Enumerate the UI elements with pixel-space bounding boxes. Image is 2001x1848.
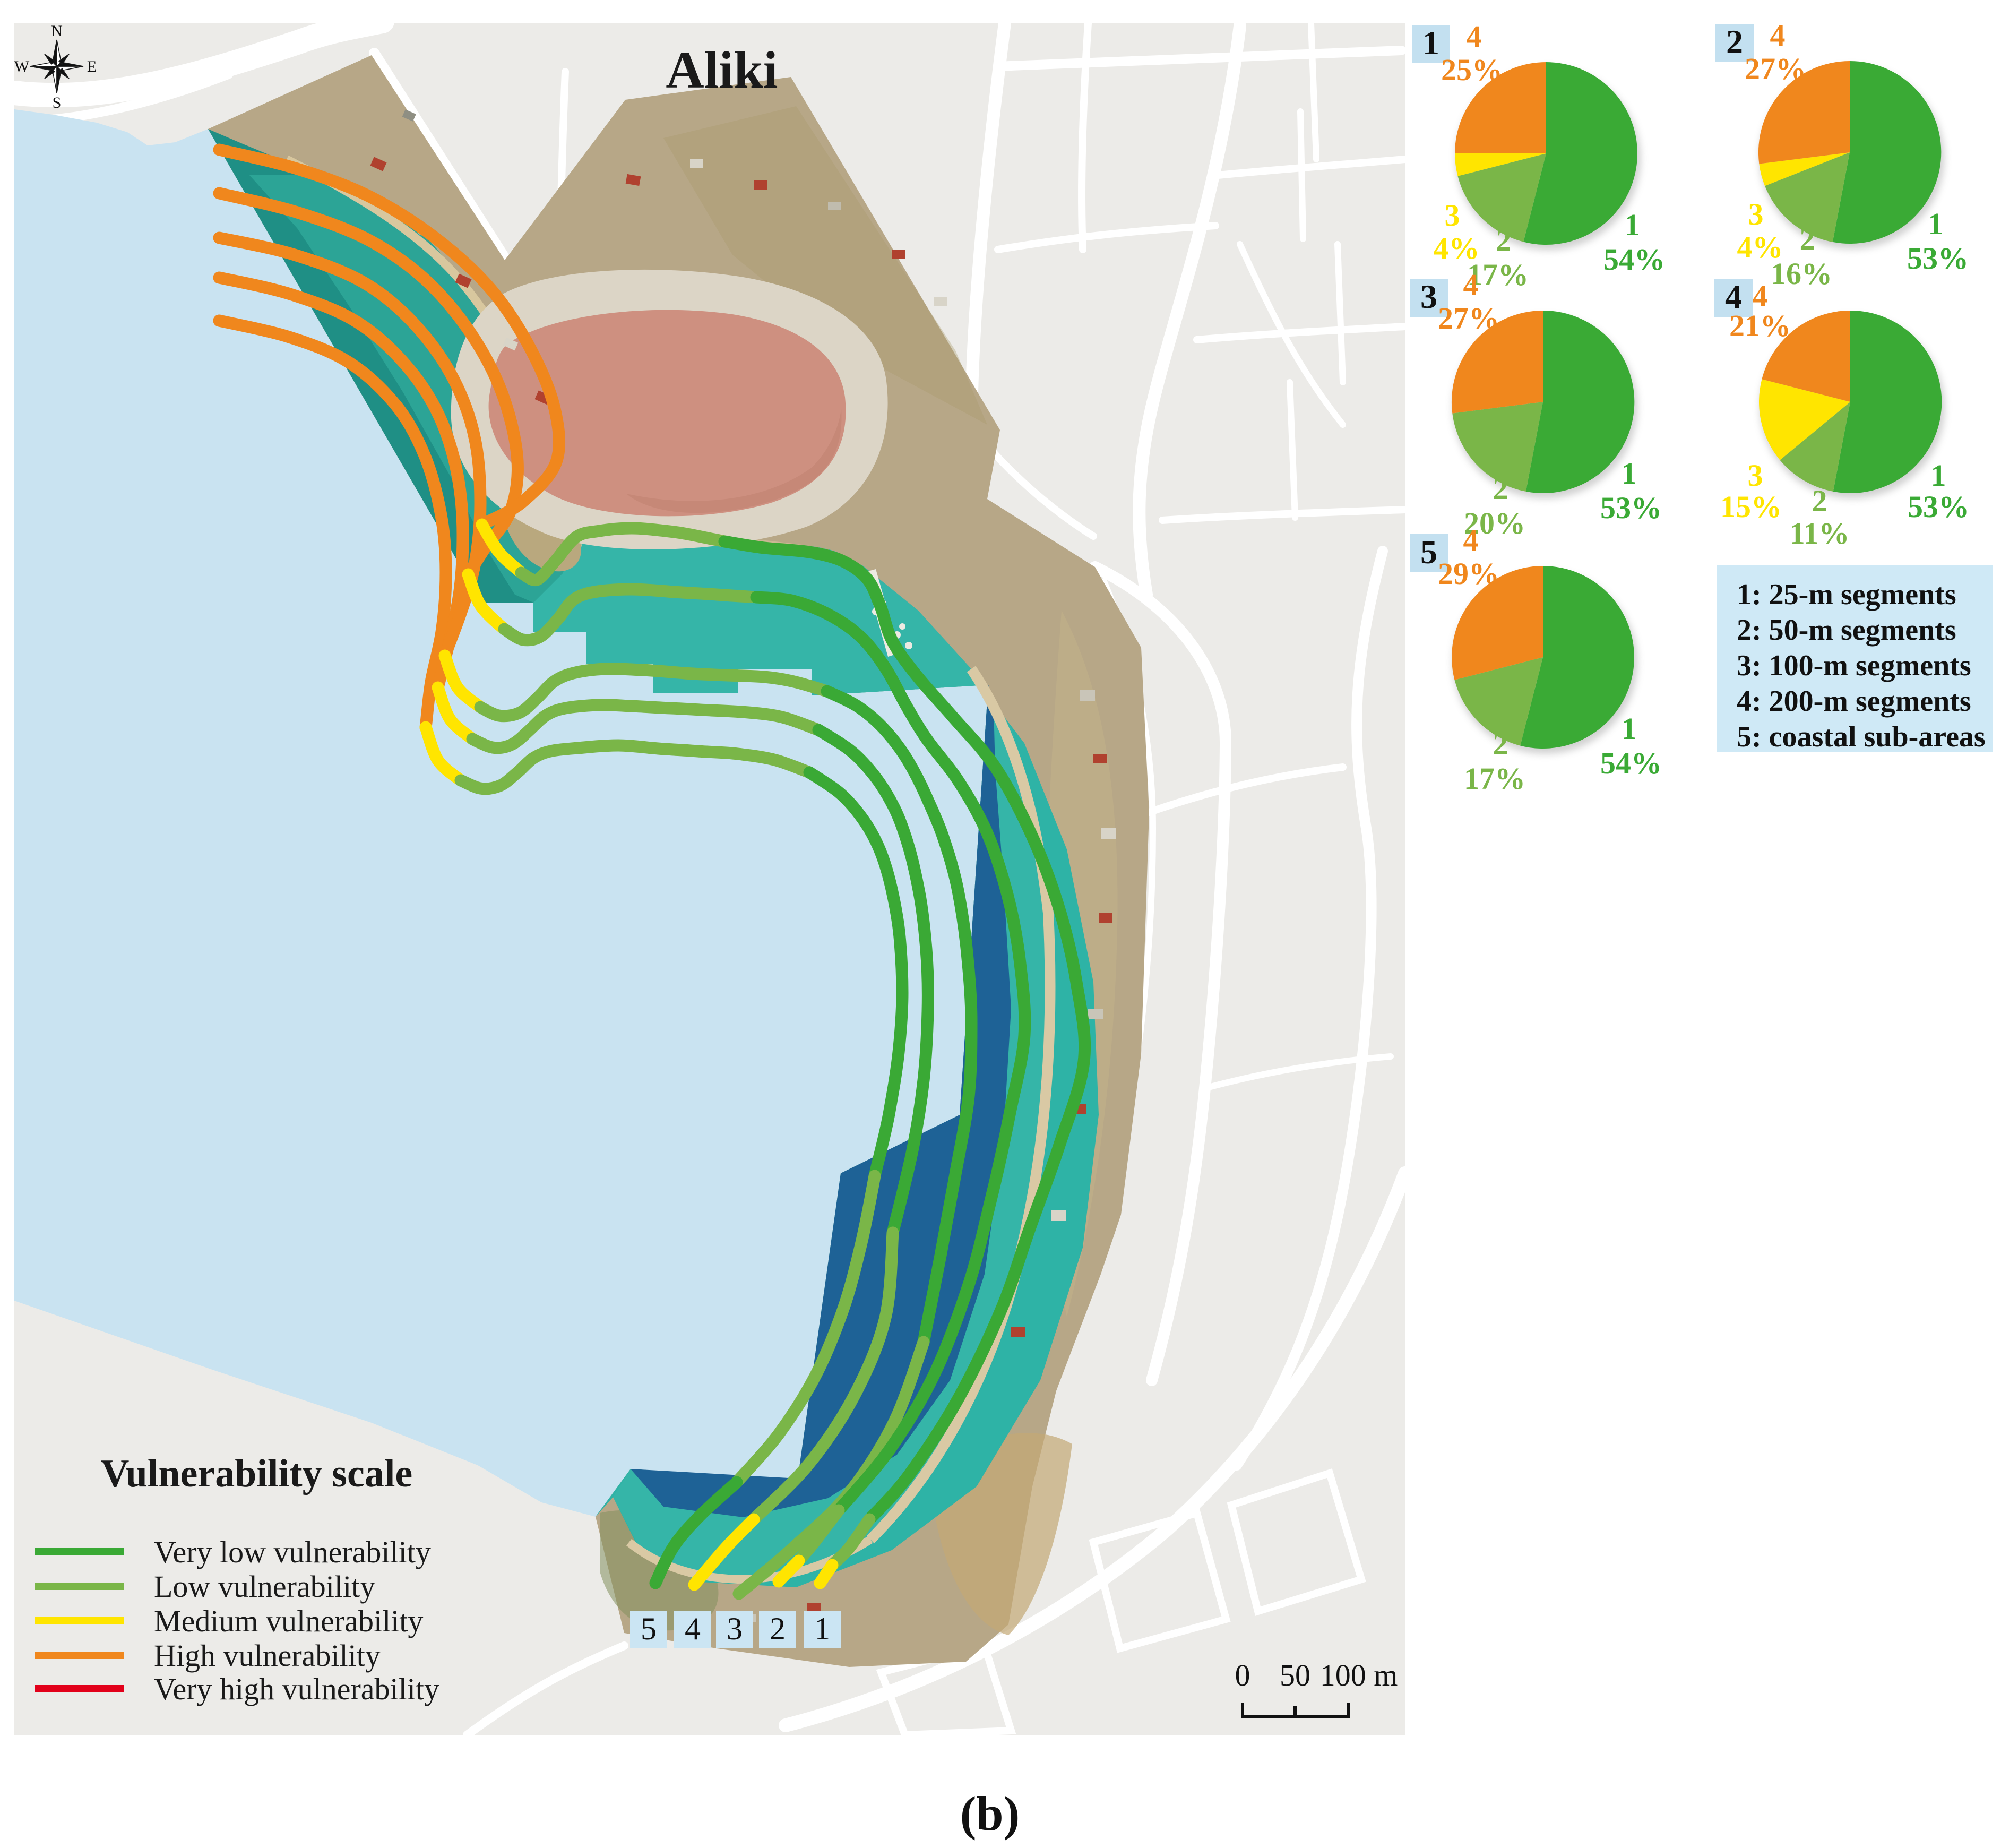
svg-text:2: 2 xyxy=(1726,23,1743,61)
svg-text:2: 2 xyxy=(1800,222,1815,256)
svg-text:4: 4 xyxy=(1467,19,1482,54)
svg-text:27%: 27% xyxy=(1438,301,1499,336)
svg-text:2: 2 xyxy=(1493,727,1508,761)
svg-text:W: W xyxy=(14,58,30,75)
svg-text:1: 1 xyxy=(1621,456,1637,491)
svg-text:Aliki: Aliki xyxy=(666,40,778,99)
svg-text:3: 3 xyxy=(727,1611,743,1646)
svg-text:100 m: 100 m xyxy=(1320,1658,1398,1692)
svg-text:2: 2 xyxy=(1812,484,1827,518)
svg-text:3: 3 xyxy=(1748,197,1764,231)
svg-text:4: 4 xyxy=(1463,268,1479,302)
svg-text:5: coastal sub-areas: 5: coastal sub-areas xyxy=(1737,720,1986,753)
svg-text:53%: 53% xyxy=(1600,491,1662,525)
svg-text:4: 200-m segments: 4: 200-m segments xyxy=(1737,685,1971,718)
svg-text:1: 1 xyxy=(1931,458,1946,493)
svg-text:Low vulnerability: Low vulnerability xyxy=(154,1569,375,1604)
svg-text:16%: 16% xyxy=(1771,256,1832,291)
svg-text:High vulnerability: High vulnerability xyxy=(154,1638,381,1673)
svg-text:25%: 25% xyxy=(1441,53,1503,87)
svg-text:53%: 53% xyxy=(1907,241,1969,276)
svg-text:2: 2 xyxy=(1496,223,1512,257)
svg-text:2: 2 xyxy=(1493,471,1508,506)
svg-text:54%: 54% xyxy=(1600,746,1662,780)
svg-text:E: E xyxy=(87,58,97,75)
svg-text:17%: 17% xyxy=(1464,761,1525,796)
svg-text:Very high vulnerability: Very high vulnerability xyxy=(154,1672,439,1706)
svg-text:Very low vulnerability: Very low vulnerability xyxy=(154,1535,431,1569)
svg-text:3: 3 xyxy=(1445,198,1460,233)
svg-text:3: 3 xyxy=(1420,278,1437,315)
svg-text:53%: 53% xyxy=(1908,489,1969,524)
svg-text:29%: 29% xyxy=(1438,556,1499,591)
svg-text:54%: 54% xyxy=(1603,242,1665,277)
svg-text:Vulnerability scale: Vulnerability scale xyxy=(101,1452,412,1495)
svg-text:15%: 15% xyxy=(1720,489,1782,524)
svg-text:1: 1 xyxy=(1928,207,1944,241)
svg-text:N: N xyxy=(51,22,63,40)
svg-text:4: 4 xyxy=(1463,523,1479,557)
svg-text:1: 1 xyxy=(1422,24,1439,62)
svg-text:(b): (b) xyxy=(960,1786,1020,1841)
svg-text:4: 4 xyxy=(1770,18,1786,53)
svg-text:50: 50 xyxy=(1280,1658,1310,1692)
svg-text:1: 1 xyxy=(1621,711,1637,746)
svg-text:0: 0 xyxy=(1235,1658,1250,1692)
svg-text:5: 5 xyxy=(641,1611,657,1646)
svg-text:S: S xyxy=(53,94,62,111)
svg-text:4: 4 xyxy=(685,1611,701,1646)
svg-text:2: 50-m segments: 2: 50-m segments xyxy=(1737,614,1956,647)
svg-text:1: 25-m segments: 1: 25-m segments xyxy=(1737,578,1956,611)
svg-text:3: 100-m segments: 3: 100-m segments xyxy=(1737,649,1971,682)
svg-text:1: 1 xyxy=(814,1611,830,1646)
svg-text:3: 3 xyxy=(1748,458,1763,493)
svg-text:27%: 27% xyxy=(1745,51,1806,86)
svg-text:5: 5 xyxy=(1420,533,1437,571)
svg-text:2: 2 xyxy=(770,1611,786,1646)
svg-text:1: 1 xyxy=(1625,208,1640,242)
svg-text:11%: 11% xyxy=(1790,516,1850,551)
svg-text:Medium vulnerability: Medium vulnerability xyxy=(154,1604,423,1638)
svg-text:21%: 21% xyxy=(1729,308,1791,343)
